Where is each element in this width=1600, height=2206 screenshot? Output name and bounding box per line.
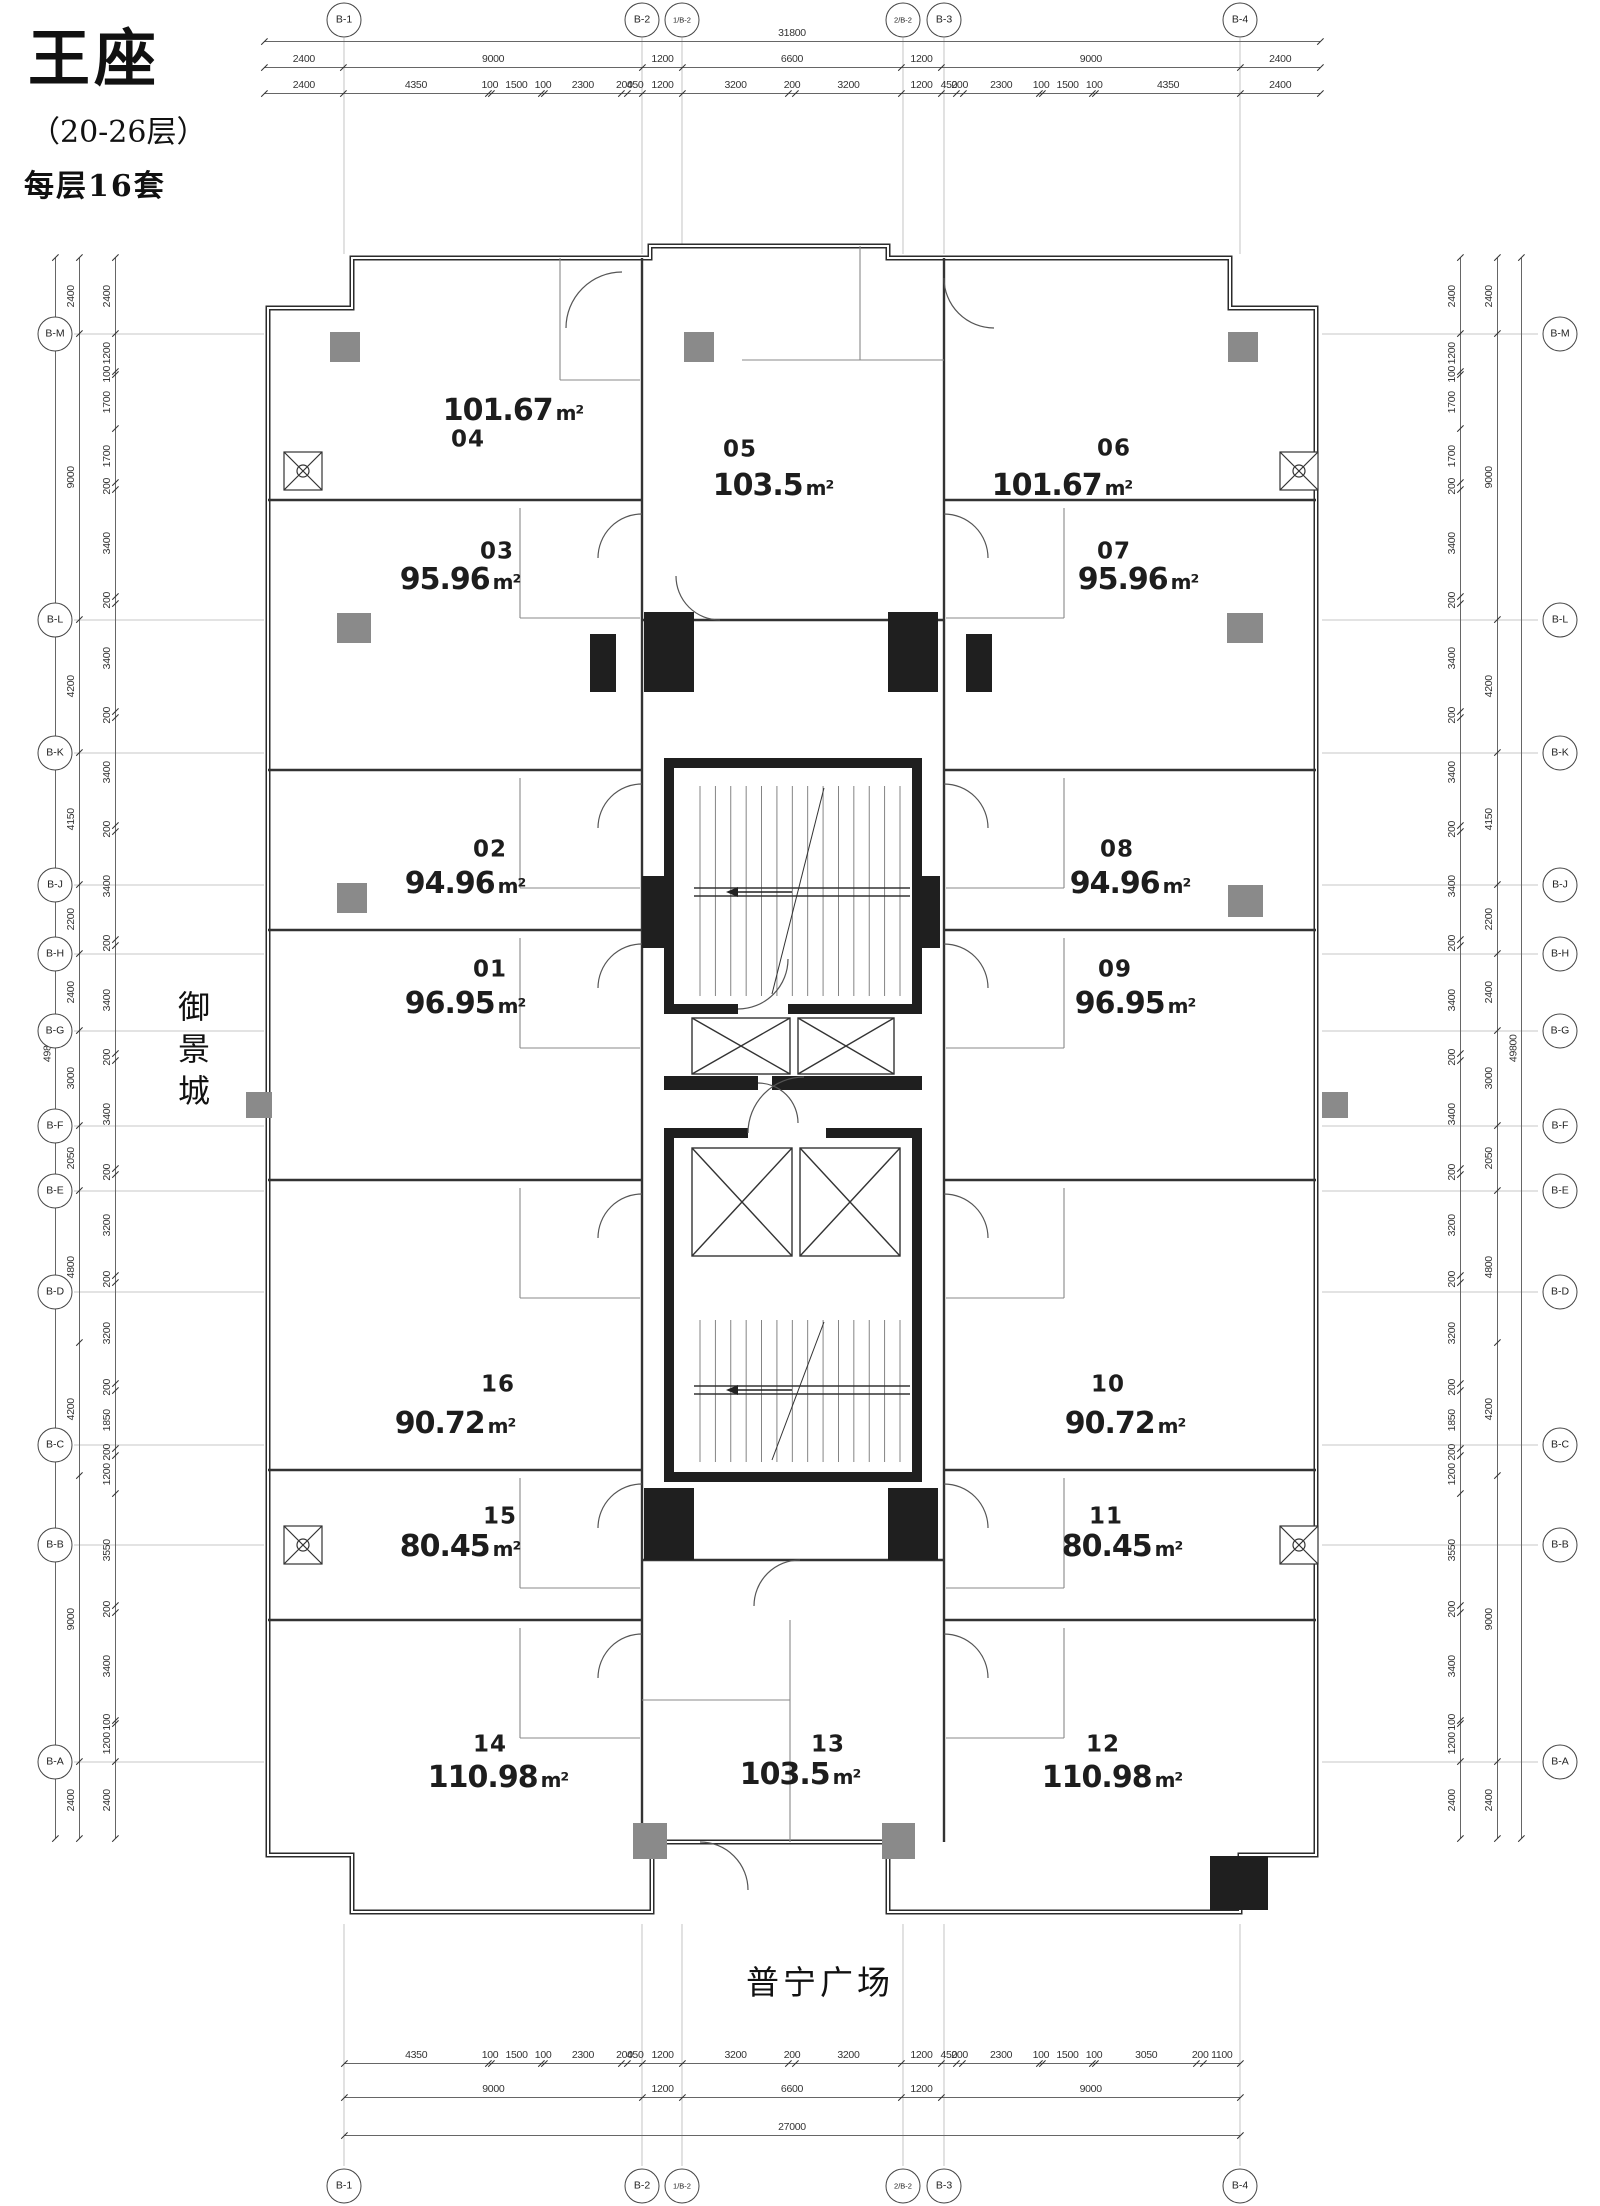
dim-segment: 2050 — [1482, 1126, 1498, 1191]
dim-segment: 1200 — [643, 78, 683, 94]
grid-bubble-left-b-c: B-C — [38, 1428, 73, 1463]
dim-chain-right-total: 49800 — [1506, 258, 1522, 1838]
grid-bubble-right-b-a: B-A — [1543, 1745, 1578, 1780]
dim-segment: 1850 — [100, 1391, 116, 1450]
grid-bubble-left-b-d: B-D — [38, 1275, 73, 1310]
grid-bubble-left-b-g: B-G — [38, 1014, 73, 1049]
dim-chain-right-major: 2400900042004150220024003000205048004200… — [1482, 258, 1498, 1838]
grid-bubble-left-b-k: B-K — [38, 736, 73, 771]
unit-number-label: 09 — [1098, 959, 1132, 982]
unit-area-label: 94.96m² — [405, 869, 526, 899]
dim-segment: 4200 — [64, 620, 80, 753]
unit-number-label: 11 — [1089, 1506, 1123, 1529]
floorplan-page: { "title": { "name": "王座", "floor_range"… — [0, 0, 1600, 2206]
dim-segment: 3550 — [1445, 1494, 1461, 1607]
unit-area-label: 80.45m² — [400, 1532, 521, 1562]
dim-segment: 3200 — [795, 78, 901, 94]
dim-chain-top-minor: 2400435010015001002300200450120032002003… — [264, 78, 1320, 94]
unit-area-label: 101.67m² — [992, 471, 1132, 501]
unit-number-label: 07 — [1097, 541, 1131, 564]
dim-segment: 4350 — [344, 78, 488, 94]
dim-segment: 9000 — [344, 2082, 643, 2098]
dim-segment: 2400 — [264, 78, 344, 94]
grid-bubble-left-b-h: B-H — [38, 937, 73, 972]
dim-segment: 9000 — [1482, 1476, 1498, 1762]
grid-bubble-left-b-a: B-A — [38, 1745, 73, 1780]
grid-bubble-top-b-3: B-3 — [927, 3, 962, 38]
dim-segment: 1200 — [100, 1724, 116, 1762]
grid-bubble-bottom-b-2: B-2 — [625, 2169, 660, 2204]
unit-number-label: 13 — [811, 1734, 845, 1757]
dim-segment: 3550 — [100, 1494, 116, 1607]
dim-chain-top-major: 2400900012006600120090002400 — [264, 52, 1320, 68]
grid-bubble-bottom-2b-2: 2/B-2 — [886, 2169, 921, 2204]
dim-segment: 1700 — [100, 375, 116, 429]
dim-segment: 2300 — [963, 2048, 1039, 2064]
dim-segment: 27000 — [344, 2120, 1240, 2136]
unit-number-label: 06 — [1097, 438, 1131, 461]
dim-segment: 3200 — [1445, 1283, 1461, 1385]
unit-number-label: 16 — [481, 1374, 515, 1397]
dim-segment: 3200 — [683, 2048, 789, 2064]
dim-segment: 1200 — [100, 1456, 116, 1494]
grid-bubble-top-b-1: B-1 — [327, 3, 362, 38]
unit-area-label: 95.96m² — [1078, 565, 1199, 595]
dim-segment: 450 — [628, 2048, 643, 2064]
grid-bubble-right-b-g: B-G — [1543, 1014, 1578, 1049]
dim-segment: 2400 — [1482, 954, 1498, 1030]
unit-area-label: 110.98m² — [428, 1763, 568, 1793]
dim-segment: 49800 — [1506, 258, 1522, 1838]
unit-number-label: 01 — [473, 959, 507, 982]
grid-bubble-bottom-1b-2: 1/B-2 — [665, 2169, 700, 2204]
dim-segment: 1200 — [643, 2048, 683, 2064]
dim-segment: 9000 — [941, 2082, 1240, 2098]
dim-segment: 3000 — [64, 1031, 80, 1126]
adjacent-label-bottom: 普宁广场 — [700, 1966, 940, 1999]
unit-number-label: 08 — [1100, 839, 1134, 862]
grid-bubble-top-b-2: B-2 — [625, 3, 660, 38]
dim-segment: 31800 — [264, 26, 1320, 42]
grid-bubble-left-b-l: B-L — [38, 603, 73, 638]
dim-segment: 9000 — [344, 52, 643, 68]
dim-segment: 3400 — [100, 490, 116, 598]
unit-area-label: 95.96m² — [400, 565, 521, 595]
dim-segment: 2400 — [100, 1762, 116, 1838]
dim-segment: 3200 — [100, 1175, 116, 1277]
dim-chain-left-minor: 2400120010017001700200340020034002003400… — [100, 258, 116, 1838]
dim-segment: 3000 — [1482, 1031, 1498, 1126]
dim-chain-bottom-major: 90001200660012009000 — [344, 2082, 1240, 2098]
dim-segment: 3400 — [1445, 1613, 1461, 1721]
dim-segment: 3400 — [1445, 604, 1461, 712]
plan-title: 王座 — [28, 28, 160, 90]
unit-area-label: 103.5m² — [713, 471, 834, 501]
unit-area-label: 94.96m² — [1070, 869, 1191, 899]
grid-bubble-right-b-j: B-J — [1543, 868, 1578, 903]
dim-segment: 6600 — [683, 2082, 902, 2098]
dim-chain-bottom-minor: 4350100150010023002004501200320020032001… — [344, 2048, 1240, 2064]
dim-segment: 4350 — [344, 2048, 488, 2064]
grid-bubble-right-b-k: B-K — [1543, 736, 1578, 771]
dim-segment: 1700 — [1445, 429, 1461, 483]
unit-area-label: 103.5m² — [740, 1760, 861, 1790]
grid-bubble-bottom-b-3: B-3 — [927, 2169, 962, 2204]
grid-bubble-right-b-f: B-F — [1543, 1109, 1578, 1144]
dim-segment: 2400 — [1240, 78, 1320, 94]
unit-area-label: 80.45m² — [1062, 1532, 1183, 1562]
dim-segment: 1700 — [1445, 375, 1461, 429]
dim-segment: 2400 — [100, 258, 116, 334]
unit-area-label: 96.95m² — [405, 989, 526, 1019]
floor-plan-drawing — [0, 0, 1600, 2206]
dim-segment: 6600 — [682, 52, 901, 68]
dim-segment: 2400 — [1445, 258, 1461, 334]
dim-segment: 200 — [789, 2048, 796, 2064]
grid-bubble-right-b-b: B-B — [1543, 1528, 1578, 1563]
unit-area-label: 90.72m² — [395, 1409, 516, 1439]
unit-number-label: 04 — [451, 429, 485, 452]
grid-bubble-right-b-h: B-H — [1543, 937, 1578, 972]
unit-area-label: 90.72m² — [1065, 1409, 1186, 1439]
grid-bubble-top-2b-2: 2/B-2 — [886, 3, 921, 38]
grid-bubble-right-b-c: B-C — [1543, 1428, 1578, 1463]
dim-segment: 1700 — [100, 429, 116, 483]
dim-segment: 4150 — [1482, 753, 1498, 885]
dim-segment: 1200 — [902, 2082, 942, 2098]
dim-segment: 3200 — [1445, 1175, 1461, 1277]
grid-bubble-left-b-b: B-B — [38, 1528, 73, 1563]
grid-bubble-top-b-4: B-4 — [1223, 3, 1258, 38]
grid-bubble-right-b-d: B-D — [1543, 1275, 1578, 1310]
grid-bubble-left-b-e: B-E — [38, 1174, 73, 1209]
dim-segment: 2400 — [264, 52, 344, 68]
unit-number-label: 02 — [473, 839, 507, 862]
dim-segment: 1200 — [1445, 1724, 1461, 1762]
dim-segment: 3400 — [100, 604, 116, 712]
dim-segment: 1200 — [643, 2082, 683, 2098]
dim-segment: 200 — [1197, 2048, 1204, 2064]
unit-area-label: 101.67m² — [443, 396, 583, 426]
dim-chain-right-minor: 2400120010017001700200340020034002003400… — [1445, 258, 1461, 1838]
dim-segment: 200 — [789, 78, 796, 94]
unit-area-label: 110.98m² — [1042, 1763, 1182, 1793]
dim-segment: 3400 — [1445, 946, 1461, 1054]
dim-segment: 4800 — [1482, 1191, 1498, 1343]
dim-segment: 4800 — [64, 1191, 80, 1343]
adjacent-label-left: 御景城 — [176, 990, 208, 1116]
dim-segment: 1850 — [1445, 1391, 1461, 1450]
dim-segment: 3400 — [100, 1613, 116, 1721]
grid-bubble-left-b-f: B-F — [38, 1109, 73, 1144]
dim-segment: 2200 — [1482, 885, 1498, 955]
dim-segment: 3400 — [100, 946, 116, 1054]
dim-segment: 2300 — [545, 2048, 621, 2064]
grid-bubble-right-b-l: B-L — [1543, 603, 1578, 638]
dim-segment: 2400 — [1482, 258, 1498, 334]
unit-number-label: 14 — [473, 1734, 507, 1757]
dim-segment: 2400 — [1482, 1762, 1498, 1838]
dim-segment: 3400 — [1445, 718, 1461, 826]
grid-bubble-bottom-b-1: B-1 — [327, 2169, 362, 2204]
grid-bubble-right-b-e: B-E — [1543, 1174, 1578, 1209]
dim-segment: 9000 — [941, 52, 1240, 68]
unit-number-label: 10 — [1091, 1374, 1125, 1397]
dim-segment: 3400 — [1445, 490, 1461, 598]
plan-units-per-floor: 每层16套 — [24, 172, 166, 202]
dim-segment: 3400 — [100, 718, 116, 826]
unit-number-label: 15 — [483, 1506, 517, 1529]
grid-bubble-left-b-m: B-M — [38, 317, 73, 352]
grid-bubble-right-b-m: B-M — [1543, 317, 1578, 352]
dim-chain-left-major: 2400900042004150220024003000205048004200… — [64, 258, 80, 1838]
unit-number-label: 12 — [1086, 1734, 1120, 1757]
unit-number-label: 03 — [480, 541, 514, 564]
dim-chain-top-total: 31800 — [264, 26, 1320, 42]
dim-segment: 1200 — [643, 52, 683, 68]
dim-segment: 4200 — [1482, 620, 1498, 753]
dim-segment: 1200 — [902, 78, 942, 94]
dim-segment: 1200 — [902, 52, 942, 68]
dim-segment: 9000 — [64, 334, 80, 620]
dim-segment: 1200 — [1445, 1456, 1461, 1494]
dim-segment: 2400 — [1240, 52, 1320, 68]
dim-segment: 3400 — [1445, 832, 1461, 940]
dim-segment: 3400 — [100, 832, 116, 940]
dim-segment: 2300 — [963, 78, 1039, 94]
dim-segment: 450 — [628, 78, 643, 94]
grid-bubble-top-1b-2: 1/B-2 — [665, 3, 700, 38]
grid-bubble-left-b-j: B-J — [38, 868, 73, 903]
dim-segment: 3200 — [682, 78, 788, 94]
dim-segment: 3200 — [100, 1283, 116, 1385]
dim-segment: 4150 — [64, 753, 80, 885]
dim-segment: 9000 — [1482, 334, 1498, 620]
dim-segment: 9000 — [64, 1476, 80, 1762]
plan-floor-range: （20-26层） — [30, 118, 206, 148]
grid-bubble-bottom-b-4: B-4 — [1223, 2169, 1258, 2204]
dim-segment: 4200 — [1482, 1343, 1498, 1476]
dim-segment: 3200 — [795, 2048, 901, 2064]
dim-segment: 3050 — [1096, 2048, 1197, 2064]
dim-segment: 4350 — [1096, 78, 1240, 94]
dim-segment: 2300 — [545, 78, 621, 94]
dim-segment: 3400 — [1445, 1061, 1461, 1169]
dim-chain-bottom-total: 27000 — [344, 2120, 1240, 2136]
dim-segment: 1200 — [902, 2048, 942, 2064]
unit-area-label: 96.95m² — [1075, 989, 1196, 1019]
dim-segment: 1100 — [1204, 2048, 1241, 2064]
dim-segment: 3400 — [100, 1061, 116, 1169]
dim-segment: 200 — [956, 78, 963, 94]
unit-number-label: 05 — [723, 439, 757, 462]
dim-segment: 2400 — [1445, 1762, 1461, 1838]
